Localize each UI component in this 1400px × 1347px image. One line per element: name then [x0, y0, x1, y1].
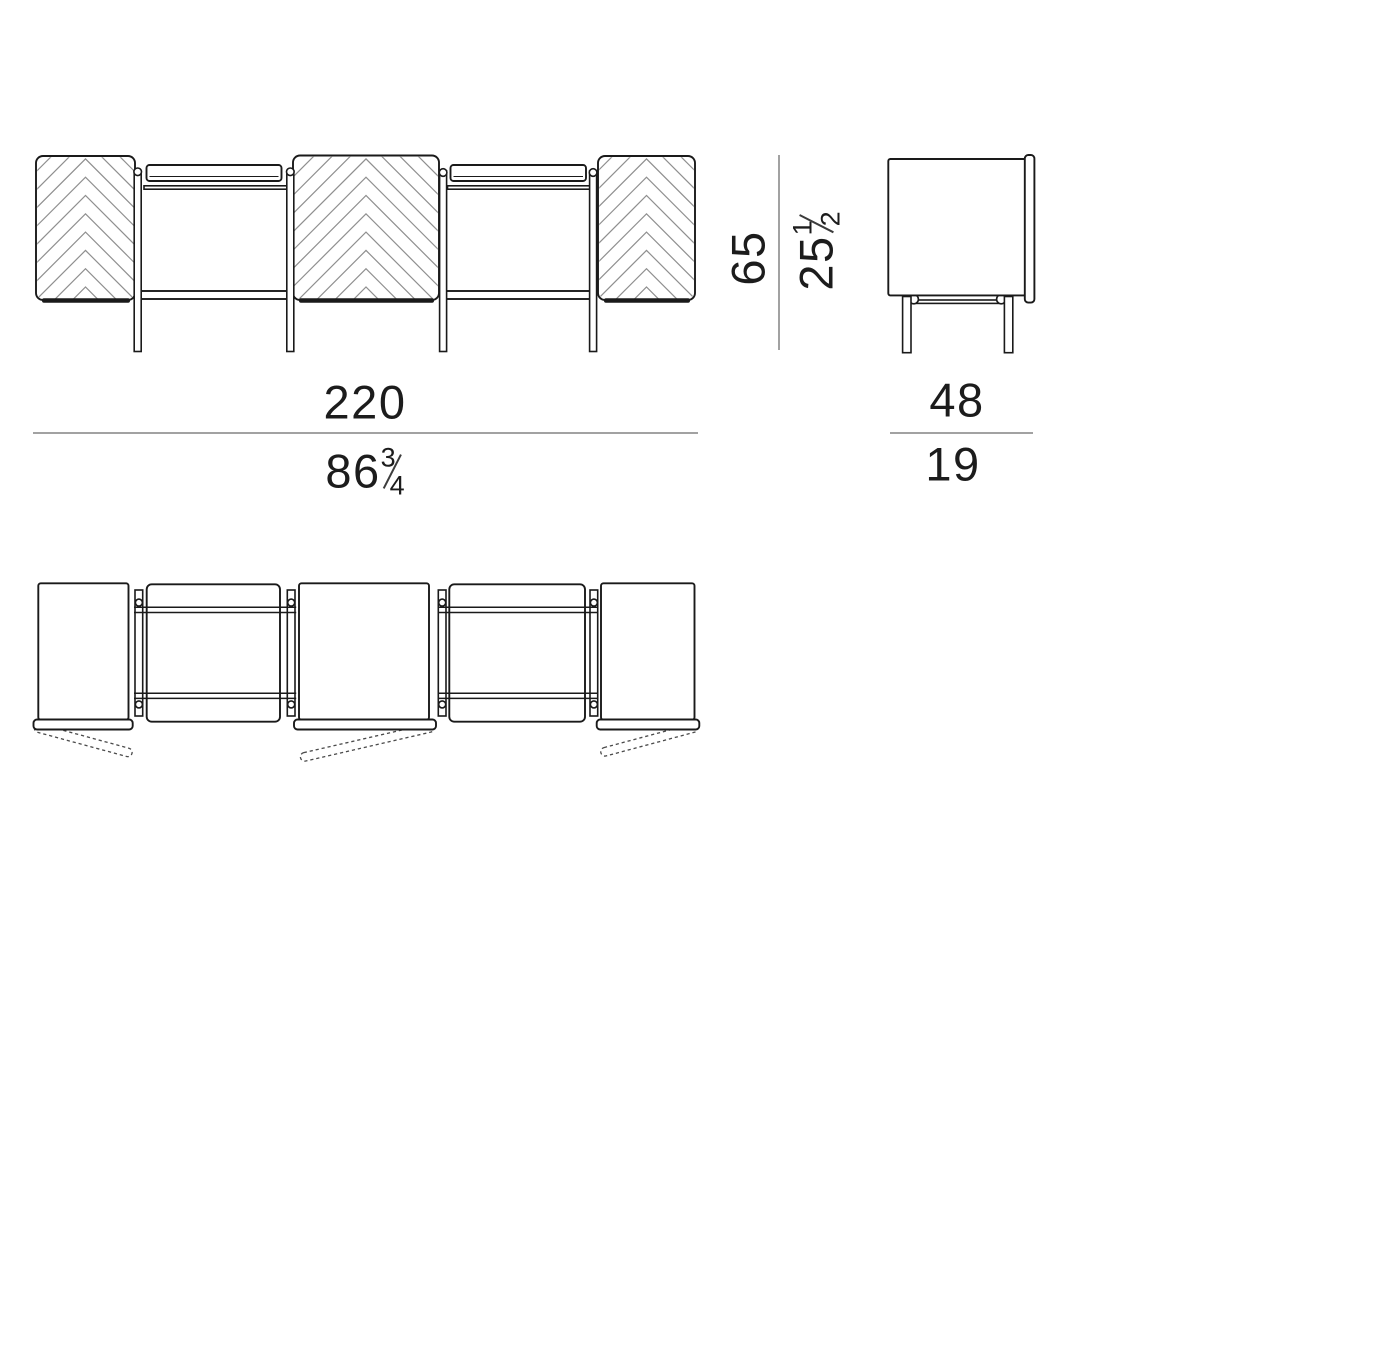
drawing-layer	[0, 0, 1400, 1347]
side-leg	[903, 297, 911, 353]
plan-door-front-left	[34, 720, 133, 730]
leg-pivot	[134, 168, 142, 176]
plan-leg-stretcher	[438, 590, 446, 716]
side-rail	[910, 300, 1005, 303]
cabinet-base-shadow	[42, 298, 130, 303]
upper-rail	[144, 186, 288, 189]
plan-leg	[135, 599, 142, 606]
plan-cabinet-left	[38, 583, 128, 720]
plan-leg	[439, 701, 446, 708]
plan-leg	[439, 599, 446, 606]
height-cm-label: 65	[725, 230, 772, 285]
shelf-tray	[451, 165, 587, 181]
plan-leg	[288, 599, 295, 606]
leg	[134, 171, 141, 352]
width-inch-label: 8634	[325, 448, 404, 495]
leg-pivot	[589, 169, 597, 177]
front-elevation	[36, 86, 695, 360]
lower-rail	[138, 291, 291, 299]
plan-cabinet-right	[601, 583, 695, 720]
sideboard-dimension-drawing: 220 8634 48 19 65 2512	[0, 0, 1400, 1347]
width-inch-denominator: 4	[390, 471, 405, 501]
plan-door-front-middle	[294, 720, 436, 730]
depth-cm-label: 48	[929, 377, 984, 424]
shelf-tray	[147, 165, 282, 181]
side-leg	[1004, 297, 1012, 353]
plan-shelf	[449, 584, 585, 721]
side-door-panel	[1025, 155, 1035, 303]
side-elevation	[888, 155, 1034, 353]
plan-shelf	[147, 584, 280, 721]
plan-leg	[135, 701, 142, 708]
leg-pivot	[439, 169, 447, 177]
plan-door-front-right	[597, 720, 700, 730]
cabinet-base-shadow	[604, 298, 690, 303]
width-inch-whole: 86	[325, 445, 380, 498]
plan-leg	[590, 599, 597, 606]
side-carcass	[888, 159, 1025, 295]
leg	[287, 171, 294, 352]
depth-inch-label: 19	[925, 441, 980, 488]
height-inch-whole: 25	[790, 235, 843, 290]
leg	[590, 171, 597, 352]
height-inch-denominator: 2	[816, 211, 846, 226]
plan-view	[33, 583, 699, 762]
plan-leg-stretcher	[287, 590, 295, 716]
plan-leg	[288, 701, 295, 708]
height-inch-label: 2512	[793, 211, 840, 290]
plan-cabinet-middle	[299, 583, 429, 720]
cabinet-base-shadow	[299, 298, 434, 303]
plan-leg-stretcher	[590, 590, 598, 716]
leg-pivot	[287, 168, 295, 176]
plan-leg	[590, 701, 597, 708]
leg	[440, 171, 447, 352]
lower-rail	[443, 291, 594, 299]
width-cm-label: 220	[324, 379, 407, 426]
upper-rail	[448, 186, 591, 189]
plan-leg-stretcher	[135, 590, 143, 716]
